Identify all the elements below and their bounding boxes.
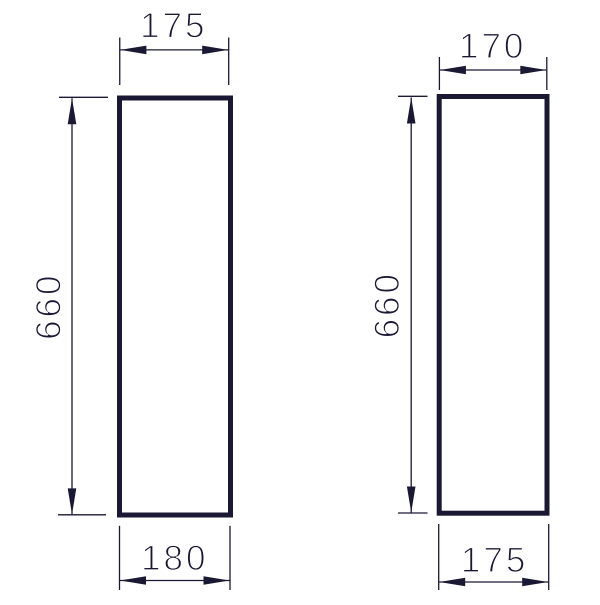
- svg-text:660: 660: [368, 271, 407, 338]
- svg-text:660: 660: [30, 272, 69, 339]
- svg-text:170: 170: [459, 27, 526, 66]
- svg-text:175: 175: [461, 541, 528, 580]
- svg-text:180: 180: [141, 539, 208, 578]
- svg-text:175: 175: [140, 7, 207, 46]
